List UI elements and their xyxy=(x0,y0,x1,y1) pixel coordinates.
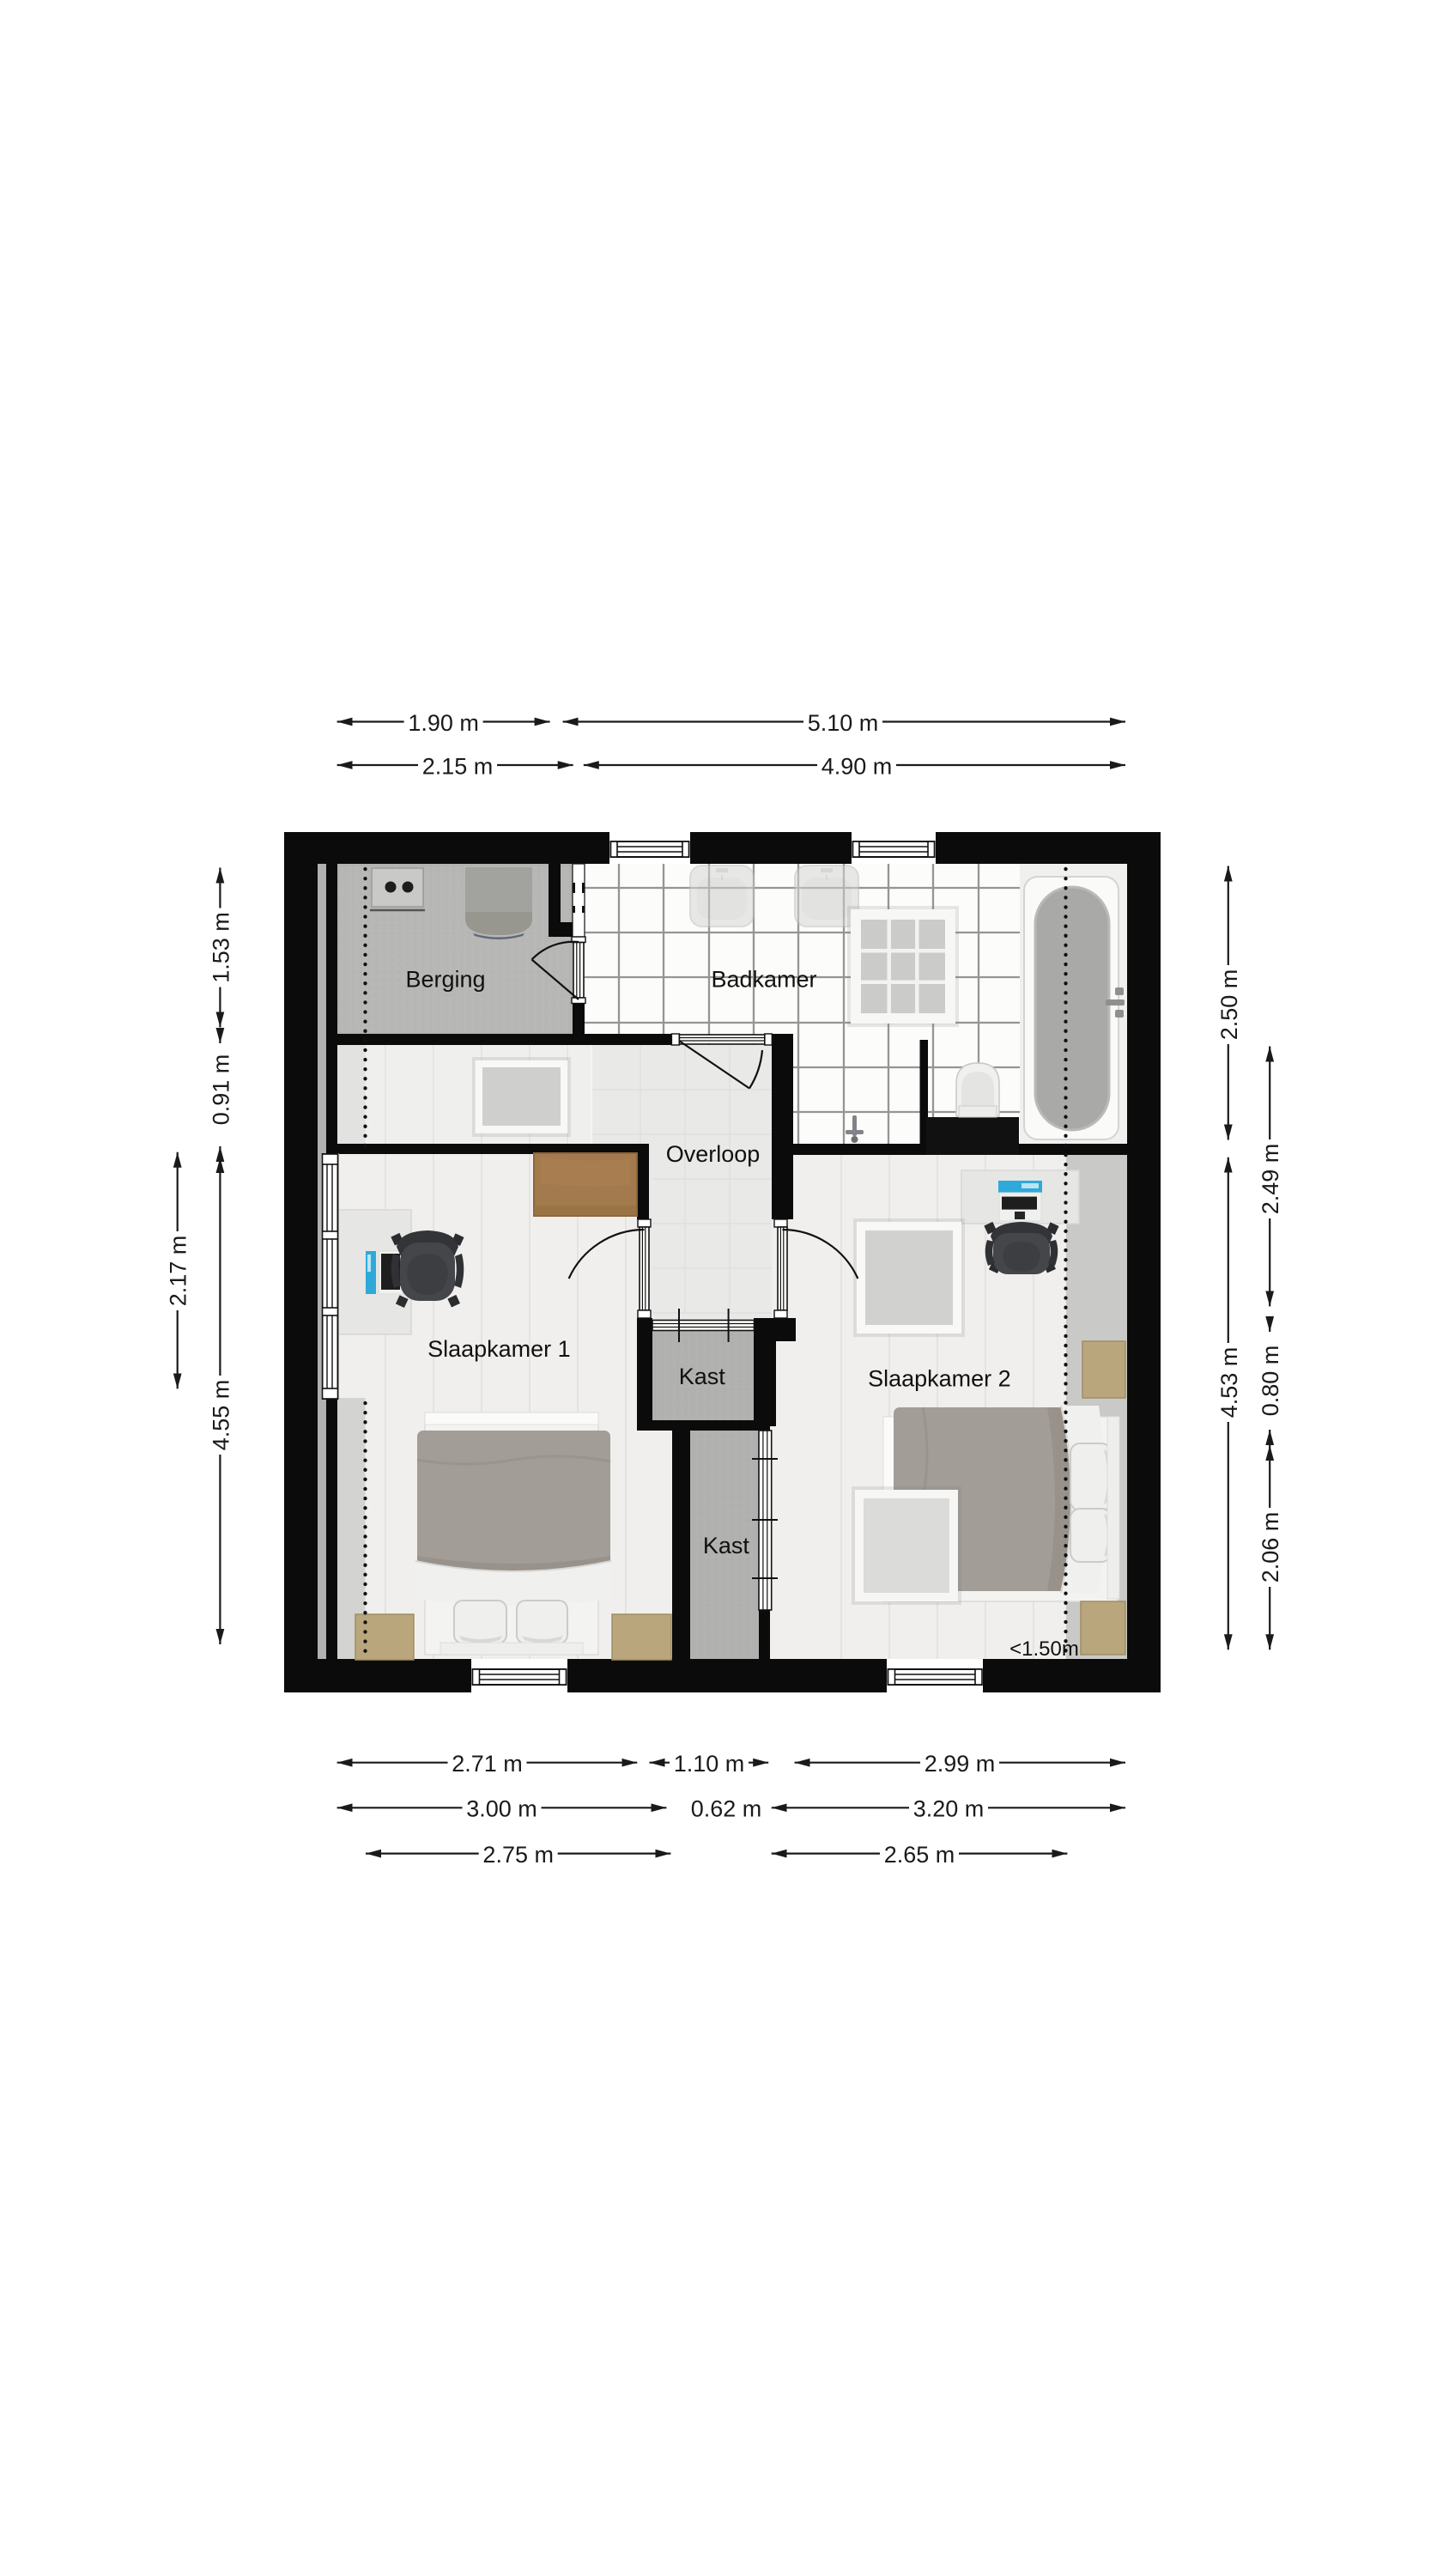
svg-text:1.53 m: 1.53 m xyxy=(208,912,233,983)
svg-text:2.06 m: 2.06 m xyxy=(1258,1512,1283,1583)
svg-text:2.50 m: 2.50 m xyxy=(1216,969,1242,1041)
svg-text:2.71 m: 2.71 m xyxy=(452,1751,523,1777)
svg-text:2.75 m: 2.75 m xyxy=(482,1842,554,1868)
svg-text:<1.50m: <1.50m xyxy=(1009,1637,1079,1661)
svg-text:2.65 m: 2.65 m xyxy=(884,1842,955,1868)
svg-text:4.90 m: 4.90 m xyxy=(822,753,893,779)
svg-text:0.62 m: 0.62 m xyxy=(691,1796,762,1822)
svg-text:4.55 m: 4.55 m xyxy=(208,1380,233,1451)
svg-text:5.10 m: 5.10 m xyxy=(808,710,879,736)
svg-text:0.91 m: 0.91 m xyxy=(208,1054,233,1126)
svg-text:2.99 m: 2.99 m xyxy=(925,1751,996,1777)
svg-text:3.00 m: 3.00 m xyxy=(466,1796,537,1822)
svg-text:Berging: Berging xyxy=(405,967,485,993)
svg-text:2.49 m: 2.49 m xyxy=(1258,1144,1283,1215)
svg-text:1.90 m: 1.90 m xyxy=(408,710,479,736)
svg-text:Slaapkamer 2: Slaapkamer 2 xyxy=(868,1366,1011,1392)
svg-text:1.10 m: 1.10 m xyxy=(674,1751,745,1777)
svg-text:Overloop: Overloop xyxy=(666,1141,761,1167)
svg-text:4.53 m: 4.53 m xyxy=(1216,1347,1242,1419)
svg-text:0.80 m: 0.80 m xyxy=(1258,1346,1283,1417)
svg-text:3.20 m: 3.20 m xyxy=(913,1796,985,1822)
svg-text:Badkamer: Badkamer xyxy=(711,967,816,993)
svg-text:2.15 m: 2.15 m xyxy=(422,753,494,779)
svg-text:Kast: Kast xyxy=(679,1364,726,1389)
svg-text:Slaapkamer 1: Slaapkamer 1 xyxy=(427,1336,571,1362)
svg-text:Kast: Kast xyxy=(703,1533,750,1558)
svg-text:2.17 m: 2.17 m xyxy=(166,1236,191,1307)
